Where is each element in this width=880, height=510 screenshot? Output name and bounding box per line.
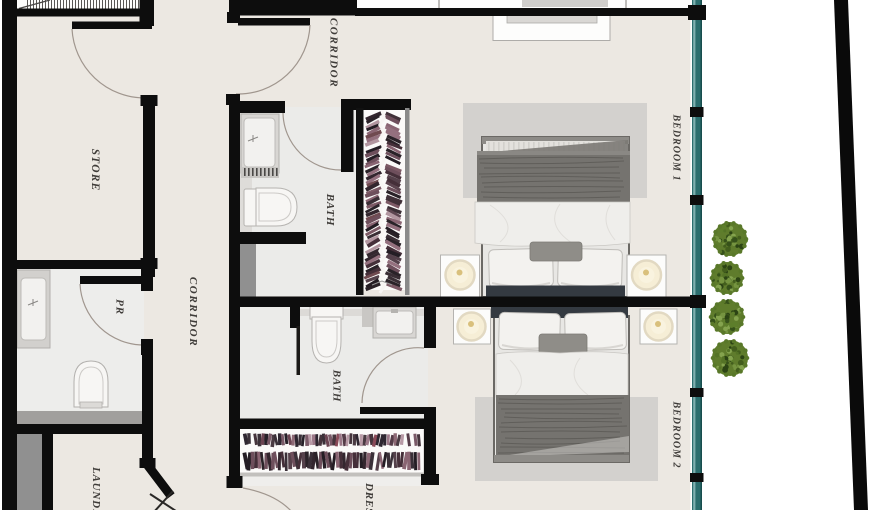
svg-text:PR: PR: [114, 299, 126, 315]
svg-text:BATH: BATH: [331, 369, 343, 403]
svg-text:BEDROOM 1: BEDROOM 1: [671, 113, 682, 181]
svg-text:DRESS: DRESS: [363, 482, 375, 510]
svg-text:LAUNDRY: LAUNDRY: [90, 466, 102, 510]
svg-text:CORRIDOR: CORRIDOR: [187, 277, 199, 347]
svg-text:STORE: STORE: [89, 149, 101, 192]
svg-text:BEDROOM 2: BEDROOM 2: [671, 400, 682, 468]
svg-text:BATH: BATH: [324, 193, 336, 227]
svg-text:CORRIDOR: CORRIDOR: [328, 18, 340, 88]
